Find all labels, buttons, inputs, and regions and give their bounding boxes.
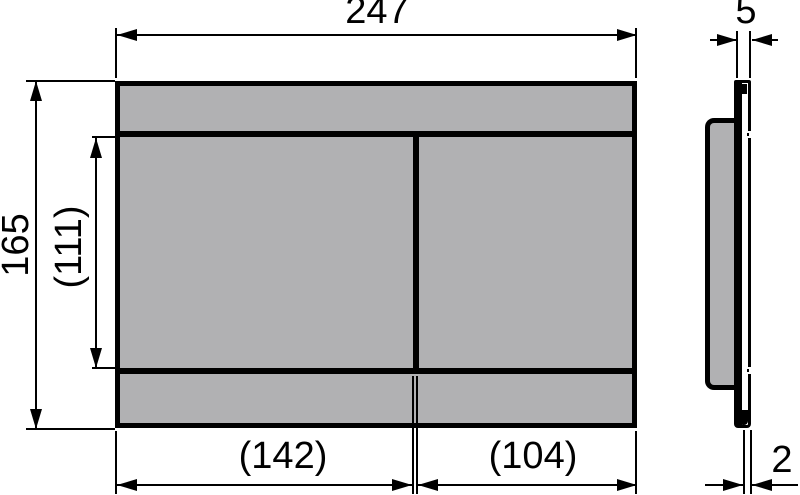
panel-bottom-seam-line	[119, 368, 633, 374]
plate-top-clip	[740, 84, 747, 94]
dim-left-button-arrow-right-icon	[392, 479, 412, 491]
dim-thickness-arrow-right-icon	[723, 479, 743, 491]
dim-depth-ext-right	[749, 31, 751, 78]
dim-width-arrow-left-icon	[117, 29, 137, 41]
dim-thickness-arrow-left-icon	[752, 479, 772, 491]
dim-width-label: 247	[117, 0, 637, 30]
dim-center-ext-line-2	[416, 376, 418, 494]
dim-depth-arrow-right-icon	[717, 34, 737, 46]
dim-depth-arrow-left-icon	[752, 34, 772, 46]
technical-drawing-canvas: 247 165 (111) (142) (104) 5 2	[0, 0, 800, 495]
dim-right-button-arrow-right-icon	[617, 479, 637, 491]
dim-height-label: 165	[0, 205, 35, 285]
plate-bottom-clip	[739, 410, 748, 425]
dim-right-button-label: (104)	[418, 437, 648, 475]
dim-thickness-ext-left	[743, 430, 745, 494]
dim-buttons-line	[95, 138, 97, 368]
plate-seam-dot-bottom	[747, 369, 749, 372]
dim-height-arrow-down-icon	[30, 409, 42, 429]
dim-thickness-label: 2	[762, 441, 800, 479]
dim-left-button-label: (142)	[138, 437, 428, 475]
plate-seam-dot-top	[747, 133, 749, 136]
dim-right-button-arrow-left-icon	[418, 479, 438, 491]
dim-left-button-line	[117, 484, 412, 486]
side-view-mounting-frame	[705, 118, 736, 390]
dim-right-button-line	[418, 484, 637, 486]
left-flush-button	[120, 137, 413, 368]
dim-buttons-arrow-up-icon	[90, 138, 102, 158]
dim-width-arrow-right-icon	[617, 29, 637, 41]
dim-buttons-label: (111)	[50, 192, 88, 302]
dim-height-arrow-up-icon	[30, 81, 42, 101]
dim-buttons-arrow-down-icon	[90, 348, 102, 368]
dim-left-button-arrow-left-icon	[117, 479, 137, 491]
right-flush-button	[419, 137, 633, 368]
dim-width-line	[117, 34, 637, 36]
dim-center-ext-line-1	[412, 376, 414, 494]
dim-depth-label: 5	[716, 0, 776, 30]
